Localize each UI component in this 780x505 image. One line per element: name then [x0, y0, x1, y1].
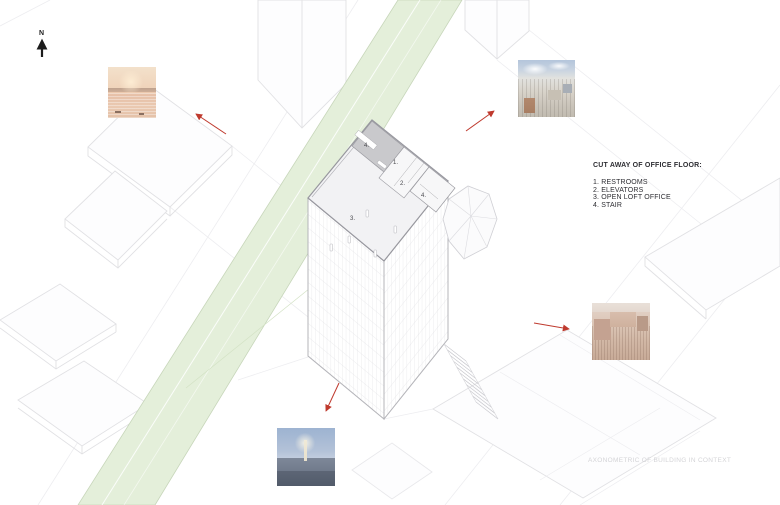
legend: CUT AWAY OF OFFICE FLOOR: 1. RESTROOMS 2… — [593, 162, 723, 209]
red-arrow-northeast — [466, 111, 494, 131]
photo-downtown-skyline-dusk — [277, 428, 335, 486]
drawing-caption: AXONOMETRIC OF BUILDING IN CONTEXT — [588, 457, 731, 464]
photo-city-aerial-view — [518, 60, 575, 117]
legend-item-open-loft: 3. OPEN LOFT OFFICE — [593, 194, 723, 202]
faceted-pavilion — [443, 186, 497, 259]
red-arrow-east — [534, 323, 569, 329]
label-elevators: 2. — [400, 181, 405, 187]
red-arrow-south — [326, 383, 339, 411]
legend-item-elevators: 2. ELEVATORS — [593, 187, 723, 195]
north-arrow: N — [39, 30, 44, 57]
label-restrooms: 1. — [393, 160, 398, 166]
photo-hudson-river-sunset — [108, 67, 156, 118]
north-label: N — [39, 30, 44, 37]
legend-items: 1. RESTROOMS 2. ELEVATORS 3. OPEN LOFT O… — [593, 179, 723, 209]
legend-item-stair: 4. STAIR — [593, 202, 723, 210]
label-open-loft: 3. — [350, 216, 355, 222]
label-stair-north: 4. — [364, 143, 369, 149]
label-stair-east: 4. — [421, 193, 426, 199]
legend-title: CUT AWAY OF OFFICE FLOOR: — [593, 162, 723, 169]
bottom-right-block — [433, 330, 716, 505]
photo-historic-street-view — [592, 303, 650, 360]
architectural-board: 4. 1. 2. 4. 3. — [0, 0, 780, 505]
legend-item-restrooms: 1. RESTROOMS — [593, 179, 723, 187]
